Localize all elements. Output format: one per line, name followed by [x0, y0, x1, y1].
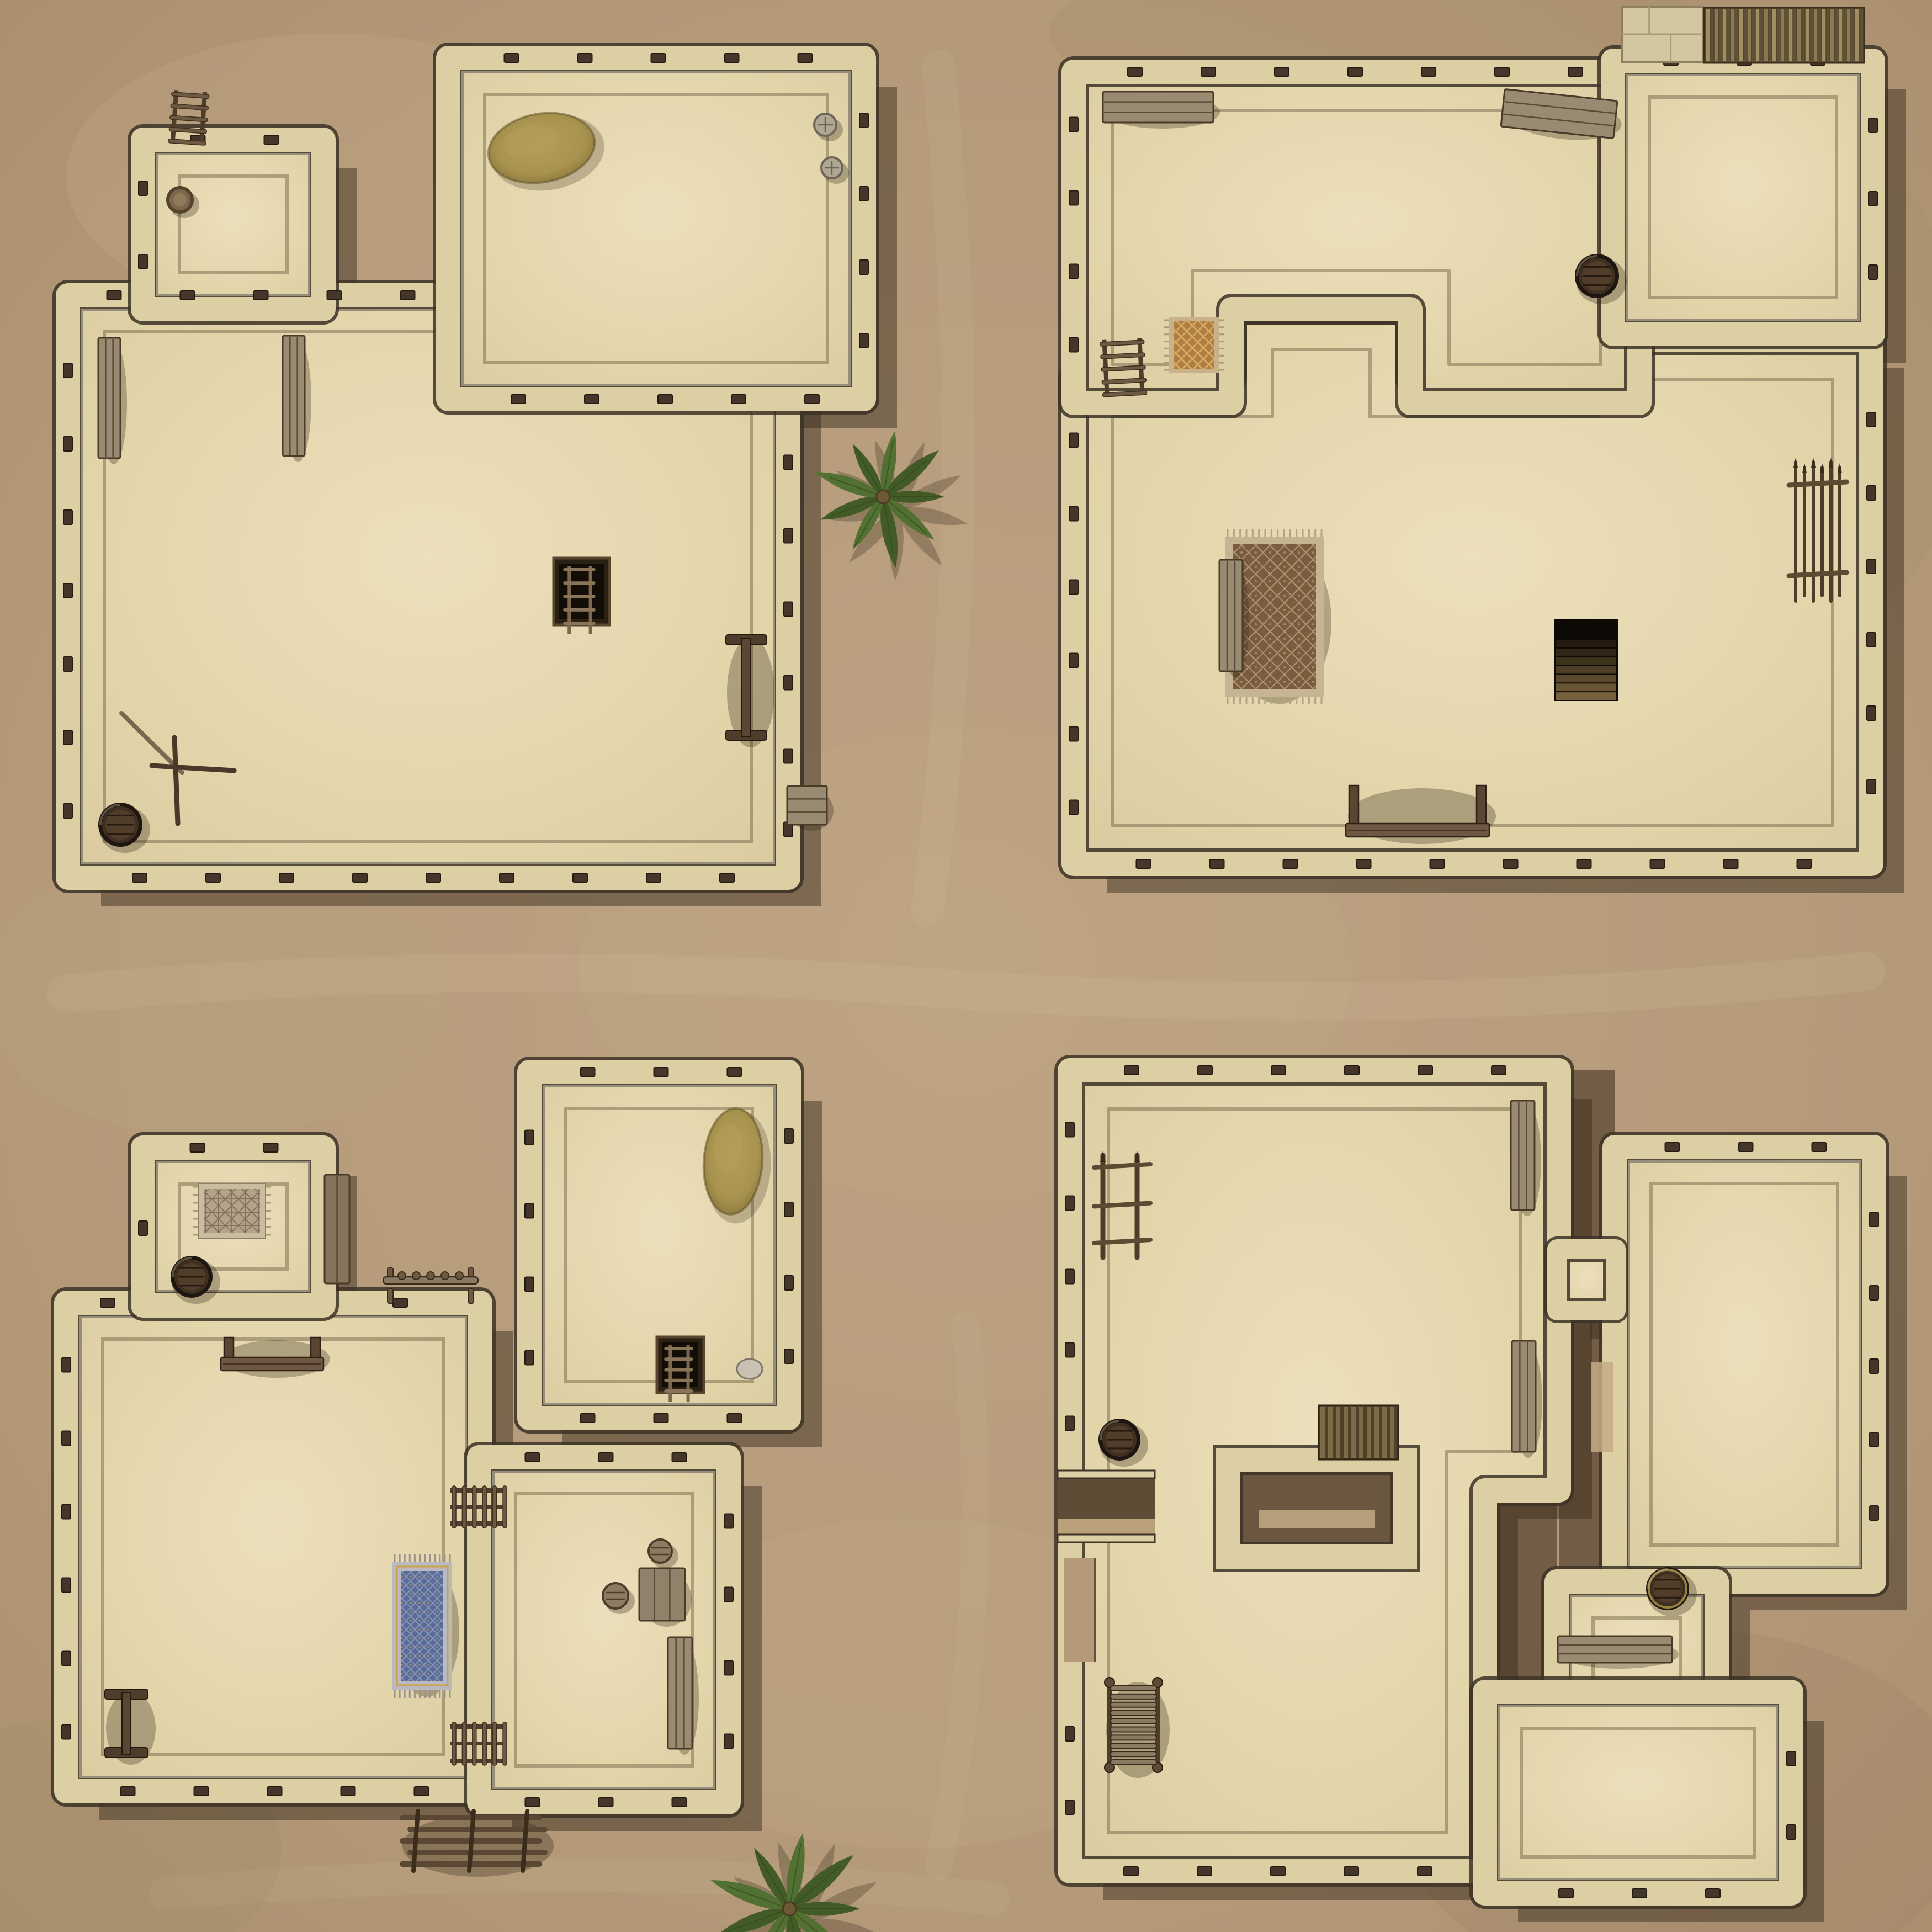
rack-pole — [122, 1692, 131, 1754]
wall-stud — [1797, 859, 1812, 868]
wall-stud — [1492, 1066, 1506, 1075]
wall-stud — [1069, 338, 1078, 352]
sand-path — [1591, 1362, 1613, 1452]
wall-stud — [859, 333, 868, 348]
wall-stud — [1137, 859, 1151, 868]
wall-stud — [798, 54, 813, 62]
planks — [1558, 1636, 1672, 1663]
ladder-rung — [482, 1486, 486, 1528]
wall-stud — [724, 1661, 733, 1675]
hitch-leg — [468, 1289, 474, 1303]
wall-stud — [505, 54, 519, 62]
ladder-rail — [450, 1724, 507, 1729]
mat-slat — [1328, 1407, 1333, 1458]
wall-stud — [585, 395, 599, 404]
ladder-rail — [450, 1488, 507, 1493]
gateway-jamb — [1058, 1535, 1155, 1542]
planks — [1219, 560, 1243, 671]
wall-stud — [63, 657, 72, 671]
wall-stud — [1128, 67, 1142, 76]
ladder-rung — [462, 1722, 466, 1765]
wall-stud — [121, 1787, 135, 1796]
room-floor — [1485, 1692, 1791, 1893]
wall-stud — [1867, 779, 1876, 794]
wall-stud — [1870, 1432, 1878, 1447]
wall-stud — [1069, 264, 1078, 279]
rack-rung — [1111, 1711, 1156, 1716]
stair-step — [1556, 649, 1616, 656]
wall-stud — [672, 1453, 687, 1462]
wall-stud — [654, 1068, 668, 1076]
wall-stud — [1069, 118, 1078, 132]
mat-slat — [1336, 1407, 1340, 1458]
wall-stud — [1867, 706, 1876, 720]
wall-stud — [1869, 265, 1877, 279]
hitch-knob — [412, 1272, 420, 1280]
wall-stud — [784, 749, 793, 763]
mat-slat — [1390, 1407, 1394, 1458]
wall-stud — [720, 873, 734, 882]
wall-stud — [415, 1787, 429, 1796]
wall-stud — [100, 1298, 115, 1307]
hitch-leg — [388, 1289, 393, 1303]
wall-stud — [526, 1453, 540, 1462]
wall-stud — [1867, 412, 1876, 427]
ladder-rung — [493, 1486, 497, 1528]
slat-mat — [1319, 1405, 1398, 1459]
ladder-rail — [450, 1521, 507, 1526]
rack-rung — [1111, 1743, 1156, 1748]
planks — [1511, 1101, 1535, 1210]
rack-rung — [1111, 1694, 1156, 1699]
wall-stud — [190, 1143, 205, 1152]
wall-stud — [1867, 559, 1876, 574]
wall-stud — [63, 363, 72, 378]
wall-stud — [1867, 633, 1876, 647]
wall-stud — [1065, 1800, 1074, 1814]
pallet-slat — [1755, 9, 1760, 62]
wall-stud — [194, 1787, 209, 1796]
ladder-rung — [503, 1722, 507, 1765]
pallet-slat — [1797, 9, 1801, 62]
wall-stud — [62, 1358, 71, 1372]
wall-stud — [525, 1204, 534, 1218]
rack-rung — [1111, 1686, 1156, 1691]
stairs-down — [1554, 619, 1618, 701]
wall-stud — [581, 1414, 595, 1423]
wall-stud — [401, 291, 415, 300]
patterned-rug — [193, 1183, 271, 1238]
wall-stud — [254, 291, 268, 300]
lashing — [1789, 482, 1846, 485]
ladder-rung — [493, 1722, 497, 1765]
wall-stud — [1421, 67, 1436, 76]
planks — [787, 786, 827, 825]
desert-battle-map — [0, 0, 1932, 1932]
wall-stud — [1065, 1270, 1074, 1284]
planks — [283, 336, 305, 456]
wall-stud — [784, 1202, 793, 1217]
pallet-slat — [1706, 9, 1710, 62]
wall-stud — [1632, 1889, 1647, 1898]
rack-rung — [1111, 1702, 1156, 1707]
wall-stud — [784, 1129, 793, 1143]
table — [639, 1568, 692, 1627]
wall-stud — [784, 602, 793, 617]
wall-stud — [1418, 1867, 1432, 1876]
ladder-rung — [473, 1486, 476, 1528]
wall-ladder — [450, 1486, 507, 1528]
wall-stud — [268, 1787, 282, 1796]
wall-stud — [1201, 67, 1216, 76]
map-canvas — [0, 0, 1932, 1932]
pallet-slat — [1838, 9, 1843, 62]
wall-stud — [264, 1143, 278, 1152]
room-passage-cell — [1557, 1249, 1616, 1310]
wall-stud — [1275, 67, 1289, 76]
rack-rung — [1111, 1735, 1156, 1740]
mat-slat — [1351, 1407, 1356, 1458]
hatch-ladder-rung — [664, 1389, 693, 1393]
hitch-knob — [427, 1272, 434, 1280]
wall-stud — [672, 1798, 687, 1807]
wall-stud — [581, 1068, 595, 1076]
wall-stud — [132, 873, 147, 882]
room-floor — [448, 58, 864, 399]
wall-stud — [1869, 192, 1877, 206]
wall-stud — [859, 187, 868, 201]
wall-stud — [341, 1787, 355, 1796]
ladder-rung — [473, 1722, 476, 1765]
plank-board — [1103, 92, 1220, 129]
wall-stud — [279, 873, 294, 882]
wall-stud — [1504, 859, 1518, 868]
hatch-ladder-rung — [664, 1357, 693, 1361]
wall-stud — [599, 1453, 613, 1462]
room-corner-room — [1613, 61, 1873, 334]
wall-ladder — [450, 1722, 507, 1765]
wall-stud — [139, 181, 147, 195]
stair-step — [1556, 666, 1616, 674]
wall-stud — [63, 437, 72, 451]
rack-pole — [742, 638, 751, 737]
wall-stud — [1344, 1867, 1358, 1876]
palm-trunk — [877, 490, 890, 503]
bench-post — [311, 1337, 320, 1358]
stair-step — [1556, 683, 1616, 691]
planks — [98, 338, 120, 458]
wall-stud — [1124, 1066, 1139, 1075]
wall-stud — [1418, 1066, 1432, 1075]
wall-stud — [1870, 1286, 1878, 1300]
wall-stud — [525, 1351, 534, 1365]
wall-stud — [1568, 67, 1583, 76]
pallet-slat — [1805, 9, 1809, 62]
hitch-knob — [455, 1272, 463, 1280]
stair-step — [1556, 692, 1616, 700]
wall-stud — [1124, 1867, 1138, 1876]
stone-platform — [1622, 7, 1703, 62]
pallet-slat — [1855, 9, 1859, 62]
rack-rung — [1111, 1727, 1156, 1732]
hatch-ladder-rung — [664, 1347, 693, 1350]
wall-stud — [181, 291, 195, 300]
room-storeroom — [143, 140, 323, 309]
room-east-hall — [1615, 1147, 1874, 1581]
wall-stud — [511, 395, 526, 404]
wall-stud — [654, 1414, 668, 1423]
wall-stud — [1787, 1751, 1796, 1766]
ladder-rail — [450, 1742, 507, 1745]
wall-stud — [353, 873, 367, 882]
bench-post — [224, 1337, 233, 1358]
wall-stud — [1065, 1123, 1074, 1137]
room-floor — [1613, 61, 1873, 334]
gateway-jamb — [1058, 1471, 1155, 1478]
stair-step — [1556, 657, 1616, 665]
wall-stud — [1577, 859, 1591, 868]
hatch-ladder-rung — [563, 622, 595, 625]
hatch-ladder-rung — [563, 568, 595, 571]
wall-stud — [724, 1514, 733, 1528]
pallet-slat — [1747, 9, 1751, 62]
wall-stud — [139, 1221, 147, 1235]
rack-rung — [1111, 1719, 1156, 1724]
pallet-slat — [1731, 9, 1735, 62]
wall-stud — [1069, 191, 1078, 205]
bench-post — [1349, 785, 1358, 825]
bench-post — [1477, 785, 1486, 825]
wall-stud — [1559, 1889, 1573, 1898]
pole — [174, 737, 178, 824]
wall-stud — [1650, 859, 1665, 868]
hatch-ladder-rung — [664, 1379, 693, 1382]
mat-slat — [1367, 1407, 1371, 1458]
wall-stud — [1197, 1867, 1212, 1876]
room-north-hall — [448, 58, 864, 399]
wall-stud — [1069, 654, 1078, 668]
wall-stud — [426, 873, 440, 882]
pallet-slat — [1722, 9, 1727, 62]
wall-stud — [1724, 859, 1738, 868]
wall-stud — [62, 1431, 71, 1446]
wall-stud — [62, 1725, 71, 1739]
hitch-knob — [398, 1272, 406, 1280]
planks — [1512, 1341, 1536, 1452]
basket-inner — [173, 193, 187, 206]
floor-hatch — [554, 558, 609, 634]
wall-stud — [725, 54, 739, 62]
room-side-room — [479, 1457, 729, 1802]
wall-stud — [1348, 67, 1362, 76]
pallet-slat — [1739, 9, 1743, 62]
wall-stud — [784, 1276, 793, 1290]
hatch-ladder-rung — [563, 608, 595, 612]
ladder-rung — [452, 1486, 456, 1528]
wall-stud — [63, 510, 72, 524]
planks — [639, 1568, 685, 1621]
hatch-ladder-rail — [668, 1345, 672, 1402]
hatch-ladder-rung — [563, 595, 595, 598]
wall-stud — [1867, 486, 1876, 500]
wall-stud — [526, 1798, 540, 1807]
stool-top — [603, 1583, 628, 1609]
rack-rung — [1111, 1751, 1156, 1756]
hatch-ladder-rail — [687, 1345, 690, 1402]
wall-stud — [1870, 1359, 1878, 1373]
wall-stud — [139, 254, 147, 269]
palm-trunk — [783, 1902, 796, 1915]
pallet-slat — [1830, 9, 1834, 62]
floor-hatch — [657, 1337, 704, 1402]
wall-stud — [1870, 1506, 1878, 1520]
gateway-path — [1058, 1519, 1155, 1536]
rug-pattern — [204, 1189, 260, 1233]
planks — [1103, 92, 1213, 123]
wall-stud — [206, 873, 220, 882]
wall-stud — [1210, 859, 1224, 868]
blue-rug — [392, 1554, 459, 1698]
wall-stud — [1665, 1143, 1680, 1151]
wall-stud — [1430, 859, 1445, 868]
wall-stud — [1870, 1212, 1878, 1227]
wall-stud — [1283, 859, 1298, 868]
mat-slat — [1374, 1407, 1379, 1458]
ladder-rail — [450, 1759, 507, 1763]
planks — [668, 1637, 692, 1749]
room-south-room — [1485, 1692, 1791, 1893]
wall-stud — [525, 1277, 534, 1292]
stair-step — [1556, 640, 1616, 647]
wall-stud — [525, 1130, 534, 1145]
mat-slat — [1359, 1407, 1363, 1458]
wall-stud — [1357, 859, 1371, 868]
pallet-slat — [1846, 9, 1851, 62]
wall-stud — [62, 1505, 71, 1519]
wall-recess — [1064, 1558, 1096, 1662]
pallet-slat — [1788, 9, 1793, 62]
hatch-ladder-rung — [664, 1368, 693, 1372]
wall-stud — [1812, 1143, 1827, 1151]
pallet-slat — [1780, 9, 1785, 62]
rack-rung — [1111, 1760, 1156, 1765]
room-floor — [143, 140, 323, 309]
wall-stud — [1065, 1343, 1074, 1357]
wall-stud — [1065, 1727, 1074, 1741]
wall-stud — [63, 804, 72, 818]
wall-stud — [1271, 1867, 1285, 1876]
wall-stud — [599, 1798, 613, 1807]
rug-pattern — [401, 1571, 443, 1681]
pallet-slat — [1813, 9, 1818, 62]
wall-stud — [859, 113, 868, 128]
wall-stud — [1787, 1825, 1796, 1839]
hitch-knob — [441, 1272, 449, 1280]
mat-slat — [1382, 1407, 1387, 1458]
ladder-rung — [452, 1722, 456, 1765]
wall-stud — [327, 291, 342, 300]
wall-stud — [573, 873, 587, 882]
wall-stud — [1495, 67, 1509, 76]
round-stone — [737, 1359, 762, 1379]
wall-stud — [578, 54, 592, 62]
wall-stud — [1065, 1416, 1074, 1431]
sand-path — [1259, 1510, 1375, 1528]
wall-stud — [62, 1578, 71, 1593]
stool-top — [649, 1540, 672, 1563]
wall-stud — [1065, 1196, 1074, 1211]
wall-stud — [1869, 118, 1877, 132]
mat-slat — [1320, 1407, 1325, 1458]
ladder-rung — [462, 1486, 466, 1528]
ladder-rung — [503, 1486, 507, 1528]
wall-stud — [500, 873, 514, 882]
wall-stud — [1198, 1066, 1212, 1075]
wall-stud — [731, 395, 746, 404]
rug-pattern — [1174, 321, 1214, 369]
wall-stud — [728, 1068, 742, 1076]
wall-stud — [62, 1652, 71, 1666]
wall-stud — [658, 395, 672, 404]
ladder-rung — [482, 1722, 486, 1765]
lashing — [1789, 572, 1846, 576]
wall-stud — [1345, 1066, 1359, 1075]
room-floor — [1615, 1147, 1874, 1581]
wall-stud — [805, 395, 819, 404]
recess-ground — [1064, 1558, 1096, 1662]
stone-body — [737, 1359, 762, 1379]
small-rug — [1164, 317, 1224, 373]
wall-stud — [724, 1588, 733, 1602]
slatted-pallet — [1704, 8, 1864, 63]
wall-stud — [646, 873, 661, 882]
wall-stud — [728, 1414, 742, 1423]
wall-stud — [393, 1298, 407, 1307]
west-gateway — [1058, 1471, 1155, 1542]
wall-stud — [784, 455, 793, 470]
wall-stud — [1069, 507, 1078, 521]
wall-stud — [784, 529, 793, 543]
wall-stud — [1739, 1143, 1753, 1151]
wall-stud — [63, 730, 72, 745]
stair-step — [1556, 675, 1616, 682]
wall-stud — [107, 291, 121, 300]
wall-stud — [784, 1349, 793, 1363]
wall-stud — [1069, 800, 1078, 815]
wall-stud — [784, 676, 793, 690]
wall-stud — [264, 135, 279, 144]
wall-stud — [1706, 1889, 1720, 1898]
pallet-slat — [1764, 9, 1768, 62]
wall-stud — [724, 1734, 733, 1749]
plank-board — [787, 786, 834, 831]
pallet-slat — [1822, 9, 1826, 62]
mat-slat — [1344, 1407, 1348, 1458]
wall-stud — [1069, 433, 1078, 448]
object-shadow — [402, 1815, 554, 1877]
wall-stud — [651, 54, 666, 62]
wall-stud — [1069, 580, 1078, 595]
plank-stack — [325, 1175, 349, 1283]
wall-stud — [63, 583, 72, 598]
hatch-ladder-rung — [563, 581, 595, 585]
ladder-rail — [450, 1505, 507, 1509]
recess-edge — [1094, 1558, 1096, 1662]
wall-stud — [859, 260, 868, 274]
plank-board — [1558, 1636, 1679, 1669]
wall-stud — [1069, 727, 1078, 741]
pallet-slat — [1772, 9, 1776, 62]
